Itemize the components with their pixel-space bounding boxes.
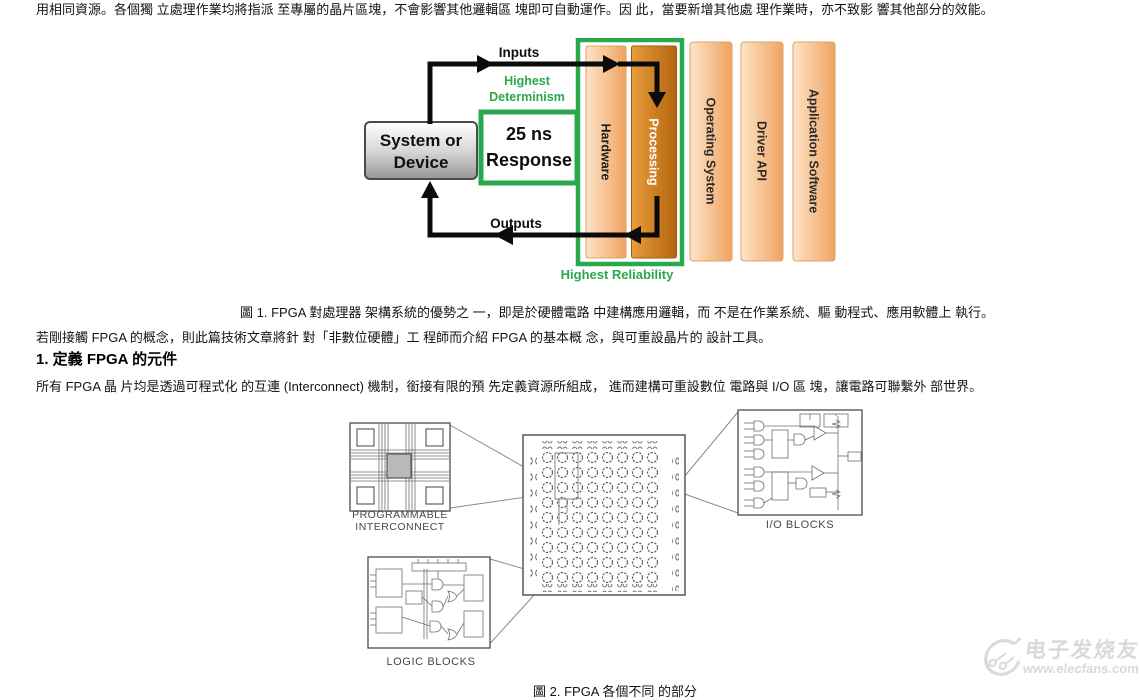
interconnect-label-line1: PROGRAMMABLE (352, 509, 448, 521)
system-device-line2: Device (394, 153, 449, 172)
response-line1: 25 ns (506, 124, 552, 144)
figure2-fpga-parts: PROGRAMMABLE INTERCONNECT LOGIC BLOCKS (345, 405, 885, 677)
reliability-label: Highest Reliability (561, 267, 674, 282)
fpga-chip-diagram (523, 435, 685, 595)
watermark: 电子发烧友 www.elecfans.com (978, 618, 1140, 697)
inputs-arrowhead (477, 55, 494, 73)
body-paragraph-1: 用相同資源。各個獨 立處理作業均將指派 至專屬的晶片區塊，不會影響其他邏輯區 塊… (36, 1, 994, 18)
switch-matrix-square (387, 454, 411, 478)
logic-blocks-label: LOGIC BLOCKS (386, 656, 475, 668)
io-blocks-label: I/O BLOCKS (766, 519, 834, 531)
determinism-line2: Determinism (489, 90, 565, 104)
operating-system-bar-label: Operating System (704, 98, 718, 205)
processing-bar-label: Processing (647, 118, 661, 185)
determinism-line1: Highest (504, 74, 551, 88)
system-device-box: System or Device (365, 122, 477, 179)
figure1-fpga-vs-processor: System or Device 25 ns Response Inputs H… (360, 38, 840, 283)
body-paragraph-2: 若剛接觸 FPGA 的概念，則此篇技術文章將針 對「非數位硬體」工 程師而介紹 … (36, 329, 771, 346)
response-line2: Response (486, 150, 572, 170)
logic-blocks-inset (368, 557, 490, 648)
outputs-label: Outputs (490, 216, 542, 231)
elecfans-logo-icon (979, 628, 1027, 688)
driver-api-bar-label: Driver API (755, 121, 769, 181)
application-software-bar-label: Application Software (807, 89, 821, 213)
hardware-bar-label: Hardware (599, 124, 613, 181)
inputs-label: Inputs (499, 45, 540, 60)
figure2-caption: 圖 2. FPGA 各個不同 的部分 (345, 681, 885, 700)
response-box: 25 ns Response (481, 112, 577, 183)
watermark-brand: 电子发烧友 (1024, 639, 1140, 662)
figure1-caption: 圖 1. FPGA 對處理器 架構系統的優勢之 一，即是於硬體電路 中建構應用邏… (240, 304, 994, 321)
io-blocks-inset (738, 410, 862, 515)
system-device-line1: System or (380, 131, 463, 150)
watermark-url: www.elecfans.com (1022, 662, 1139, 676)
body-paragraph-3: 所有 FPGA 晶 片均是透過可程式化 的互連 (Interconnect) 機… (36, 378, 982, 395)
section-heading: 1. 定義 FPGA 的元件 (36, 351, 177, 368)
page-root: { "document": { "paragraph1": "用相同資源。各個獨… (0, 0, 1140, 697)
interconnect-label-line2: INTERCONNECT (355, 521, 445, 533)
interconnect-inset (350, 423, 450, 511)
